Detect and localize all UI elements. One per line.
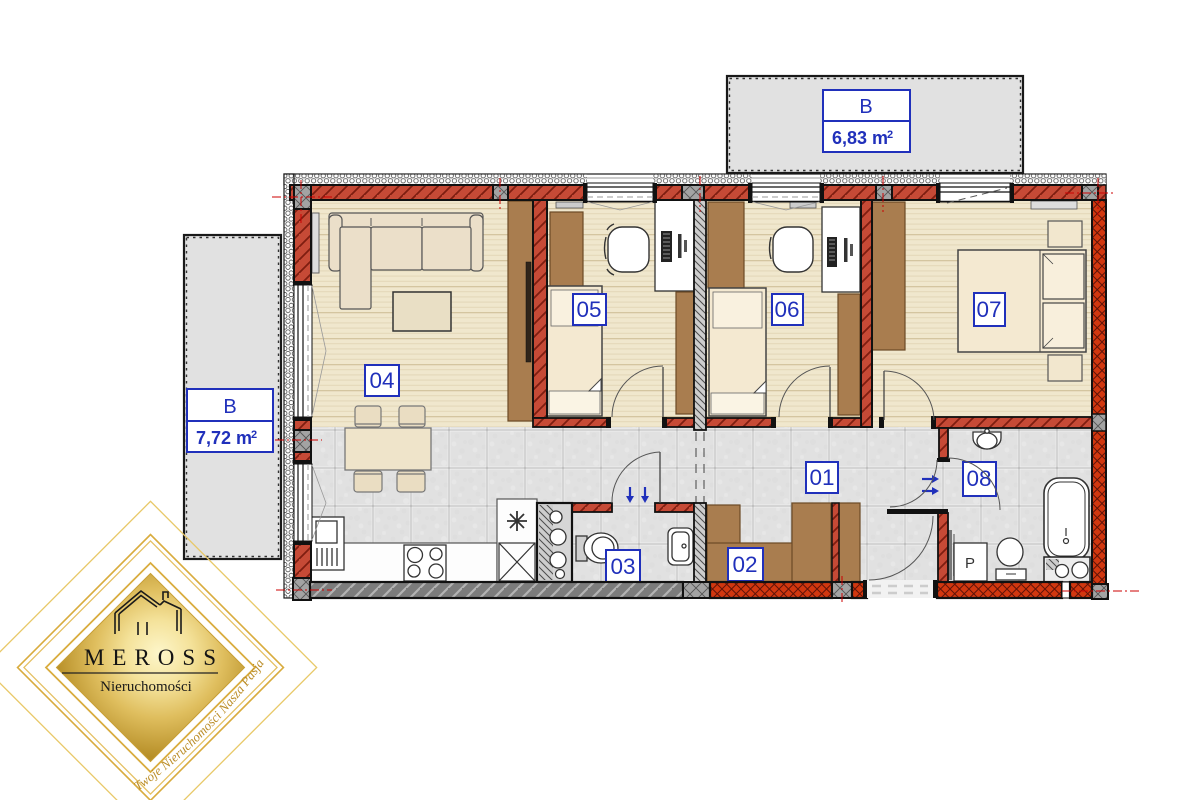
svg-text:B: B — [223, 396, 236, 418]
svg-text:02: 02 — [732, 552, 757, 577]
svg-text:07: 07 — [976, 297, 1001, 322]
svg-text:03: 03 — [610, 554, 635, 579]
svg-text:B: B — [859, 96, 872, 118]
svg-text:Nieruchomości: Nieruchomości — [100, 679, 192, 695]
svg-text:P: P — [965, 555, 975, 572]
svg-text:7,72 m: 7,72 m — [196, 428, 252, 448]
svg-text:01: 01 — [809, 465, 834, 490]
svg-text:6,83 m: 6,83 m — [832, 128, 888, 148]
svg-text:06: 06 — [774, 297, 799, 322]
svg-text:04: 04 — [369, 368, 394, 393]
svg-text:05: 05 — [576, 297, 601, 322]
svg-text:08: 08 — [966, 466, 991, 491]
svg-text:2: 2 — [887, 129, 893, 141]
svg-text:MEROSS: MEROSS — [84, 645, 224, 670]
svg-text:2: 2 — [251, 429, 257, 441]
